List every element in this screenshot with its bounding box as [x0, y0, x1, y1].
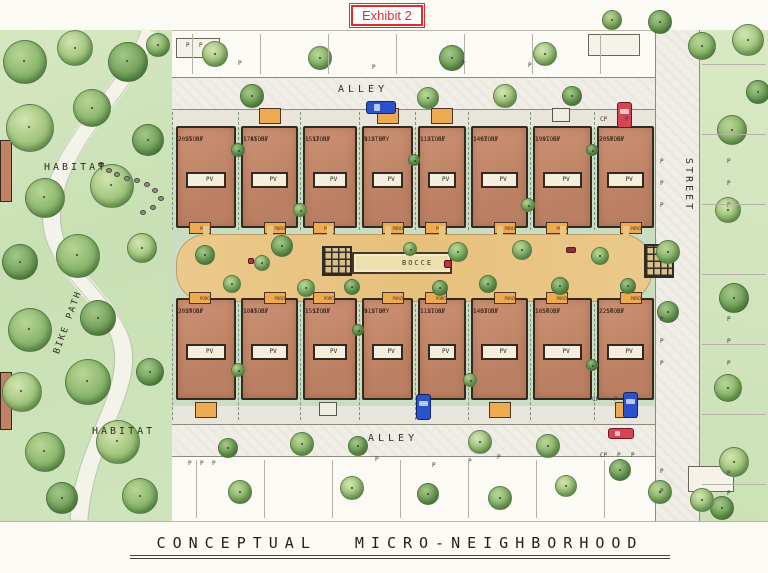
- lot-line: [702, 274, 766, 275]
- lot-line: [702, 204, 766, 205]
- house-area-label: 1121 SF: [420, 136, 445, 144]
- pv-solar-panel: PV: [543, 344, 582, 360]
- lot-line: [600, 34, 601, 74]
- tree-icon: [57, 30, 93, 66]
- tree-icon: [715, 197, 741, 223]
- garage-pad: [195, 402, 217, 418]
- lot-line: [260, 34, 261, 74]
- tree-icon: [25, 432, 65, 472]
- porch-label: PORCH: [631, 223, 642, 234]
- plan-boundary-line: [0, 521, 768, 522]
- house: 1 STORY1512 SFPVPORCH: [303, 298, 357, 400]
- house: 2 STORY2025 SFPVPORCH: [176, 126, 236, 228]
- tree-icon: [80, 300, 116, 336]
- lot-line: [468, 460, 469, 518]
- house: 1 STORY912 SFPVPORCH: [362, 298, 413, 400]
- pv-solar-panel: PV: [372, 172, 403, 188]
- pv-solar-panel: PV: [607, 344, 644, 360]
- tree-icon: [136, 358, 164, 386]
- alley-south: ALLEY: [172, 424, 655, 457]
- tree-icon: [562, 86, 582, 106]
- tree-icon: [719, 283, 749, 313]
- parking-label: P: [660, 360, 664, 367]
- tree-icon: [408, 154, 420, 166]
- pv-solar-panel: PV: [481, 344, 518, 360]
- tree-icon: [297, 279, 315, 297]
- tree-icon: [352, 324, 364, 336]
- pv-label: PV: [563, 174, 570, 186]
- tree-icon: [25, 178, 65, 218]
- pv-solar-panel: PV: [372, 344, 403, 360]
- parking-label: P: [631, 452, 635, 459]
- parking-label: P: [660, 158, 664, 165]
- lot-line: [172, 304, 173, 420]
- lot-line: [702, 344, 766, 345]
- tree-icon: [340, 476, 364, 500]
- tree-icon: [254, 255, 270, 271]
- lot-line: [702, 134, 766, 135]
- car-windshield: [626, 399, 635, 404]
- house-area-label: 1121 SF: [420, 308, 445, 316]
- lot-line: [532, 34, 533, 74]
- porch-label: PORCH: [505, 293, 516, 304]
- garage-pad: [552, 108, 570, 122]
- porch-label: PORCH: [324, 293, 335, 304]
- tree-icon: [231, 363, 245, 377]
- parking-label: P: [727, 158, 731, 165]
- parking-label: P: [660, 316, 664, 323]
- tree-icon: [521, 198, 535, 212]
- lot-line: [238, 112, 239, 230]
- house-area-label: 1512 SF: [305, 136, 330, 144]
- habitat-label-south: HABITAT: [92, 426, 155, 437]
- site-plan-drawing: ALLEY ALLEY BOCCE 2 STORY2025 SFPVPORCH1…: [0, 0, 768, 573]
- tree-icon: [591, 247, 609, 265]
- pv-solar-panel: PV: [313, 172, 347, 188]
- tree-icon: [620, 278, 636, 294]
- tree-icon: [602, 10, 622, 30]
- courtyard-walk: [267, 226, 273, 240]
- house-area-label: 1512 SF: [305, 308, 330, 316]
- tree-icon: [656, 240, 680, 264]
- parking-label: P: [375, 456, 379, 463]
- pv-label: PV: [206, 346, 213, 358]
- tree-icon: [56, 234, 100, 278]
- house-area-label: 2025 SF: [178, 136, 203, 144]
- lot-line: [238, 304, 239, 420]
- parking-label: CP: [592, 396, 599, 403]
- tree-icon: [512, 240, 532, 260]
- alley-apron-south: [172, 406, 655, 424]
- tree-icon: [271, 235, 293, 257]
- lot-line: [594, 112, 595, 230]
- courtyard-walk: [385, 226, 391, 240]
- lot-line: [196, 460, 197, 518]
- car-windshield: [615, 431, 620, 436]
- courtyard-walk: [439, 226, 445, 240]
- parking-label: P: [188, 460, 192, 467]
- tree-icon: [479, 275, 497, 293]
- house: 1 STORY1121 SFPVPORCH: [418, 126, 466, 228]
- tree-icon: [746, 80, 768, 104]
- house: 1 STORY1991 SFPVPORCH: [533, 126, 592, 228]
- exhibit-badge: Exhibit 2: [351, 5, 423, 26]
- alley-south-label: ALLEY: [368, 433, 418, 444]
- stepping-stone: [158, 196, 164, 201]
- tree-icon: [223, 275, 241, 293]
- lot-line: [468, 304, 469, 420]
- parking-label: CP: [600, 452, 607, 459]
- pv-label: PV: [270, 174, 277, 186]
- garage-pad: [259, 108, 281, 124]
- tree-icon: [551, 277, 569, 295]
- parking-label: P: [186, 42, 190, 49]
- tree-icon: [127, 233, 157, 263]
- lot-line: [192, 34, 193, 74]
- lot-line: [332, 460, 333, 518]
- house: 1 STORY1745 SFPVPORCH: [241, 126, 298, 228]
- tree-icon: [8, 308, 52, 352]
- lot-line: [702, 484, 766, 485]
- tree-icon: [719, 447, 749, 477]
- pv-label: PV: [626, 174, 633, 186]
- house: 2 STORY2250 SFPVPORCH: [597, 298, 654, 400]
- porch-label: PORCH: [393, 293, 404, 304]
- tree-icon: [463, 373, 477, 387]
- porch-label: PORCH: [275, 293, 286, 304]
- house: 2 STORY2029 SFPVPORCH: [176, 298, 236, 400]
- car-windshield: [620, 109, 629, 114]
- house: 1 STORY1850 SFPVPORCH: [533, 298, 592, 400]
- pv-solar-panel: PV: [313, 344, 347, 360]
- tree-icon: [439, 45, 465, 71]
- parked-car-icon: [623, 392, 638, 418]
- tree-icon: [586, 144, 598, 156]
- porch-label: PORCH: [275, 223, 286, 234]
- parking-label: P: [212, 460, 216, 467]
- lot-line: [536, 460, 537, 518]
- house-area-label: 2029 SF: [178, 308, 203, 316]
- house-area-label: 1845 SF: [243, 308, 268, 316]
- lot-line: [655, 304, 656, 420]
- tree-icon: [132, 124, 164, 156]
- tree-icon: [65, 359, 111, 405]
- tree-icon: [493, 84, 517, 108]
- parking-label: P: [727, 470, 731, 477]
- stepping-stone: [150, 205, 156, 210]
- lot-line: [400, 460, 401, 518]
- courtyard-walk: [327, 226, 333, 240]
- pv-label: PV: [626, 346, 633, 358]
- parking-label: P: [625, 116, 629, 123]
- porch: PORCH: [189, 292, 211, 304]
- bench-icon: [566, 247, 576, 253]
- tree-icon: [690, 488, 714, 512]
- lot-line: [702, 414, 766, 415]
- street-label: STREET: [683, 158, 694, 212]
- parking-label: P: [199, 42, 203, 49]
- lot-line: [702, 64, 766, 65]
- pv-solar-panel: PV: [251, 344, 288, 360]
- lot-line: [530, 304, 531, 420]
- parking-label: P: [727, 316, 731, 323]
- tree-icon: [403, 242, 417, 256]
- stepping-stone: [140, 210, 146, 215]
- tree-icon: [533, 42, 557, 66]
- pv-label: PV: [330, 346, 337, 358]
- tree-icon: [432, 280, 448, 296]
- tree-icon: [417, 483, 439, 505]
- parked-car-icon: [366, 101, 396, 114]
- pv-solar-panel: PV: [481, 172, 518, 188]
- pv-solar-panel: PV: [543, 172, 582, 188]
- garage-pad: [319, 402, 337, 416]
- stepping-stone: [152, 188, 158, 193]
- parking-label: P: [727, 180, 731, 187]
- trellis-arbor: [322, 246, 352, 276]
- tree-icon: [3, 40, 47, 84]
- lot-line: [359, 304, 360, 420]
- tree-icon: [536, 434, 560, 458]
- tree-icon: [688, 32, 716, 60]
- pv-label: PV: [500, 346, 507, 358]
- parking-label: P: [372, 64, 376, 71]
- parking-label: P: [617, 452, 621, 459]
- porch-label: PORCH: [393, 223, 404, 234]
- house: 1 STORY1121 SFPVPORCH: [418, 298, 466, 400]
- house: 1 STORY912 SFPVPORCH: [362, 126, 413, 228]
- lot-line: [604, 460, 605, 518]
- courtyard-walk: [560, 226, 566, 240]
- tree-icon: [6, 104, 54, 152]
- house: 1 STORY1845 SFPVPORCH: [241, 298, 298, 400]
- neighbor-building: [0, 140, 12, 202]
- tree-icon: [240, 84, 264, 108]
- bench-icon: [444, 260, 452, 268]
- tree-icon: [417, 87, 439, 109]
- parking-label: P: [660, 468, 664, 475]
- pv-label: PV: [442, 174, 449, 186]
- parking-label: P: [727, 360, 731, 367]
- house: 1 STORY1403 SFPVPORCH: [471, 298, 528, 400]
- porch: PORCH: [313, 292, 335, 304]
- tree-icon: [488, 486, 512, 510]
- porch-label: PORCH: [505, 223, 516, 234]
- tree-icon: [586, 359, 598, 371]
- courtyard-walk: [203, 226, 209, 240]
- tree-icon: [448, 242, 468, 262]
- pv-label: PV: [442, 346, 449, 358]
- stepping-stone: [114, 172, 120, 177]
- lot-line: [468, 112, 469, 230]
- house: 2 STORY2050 SFPVPORCH: [597, 126, 654, 228]
- house-area-label: 1403 SF: [473, 308, 498, 316]
- tree-icon: [146, 33, 170, 57]
- parking-label: P: [432, 462, 436, 469]
- neighbor-building: [588, 34, 640, 56]
- parking-label: P: [660, 488, 664, 495]
- parking-label: P: [727, 490, 731, 497]
- parking-label: CP: [600, 116, 607, 123]
- bocce-court: BOCCE: [352, 252, 452, 274]
- lot-line: [172, 112, 173, 230]
- house-area-label: 912 SF: [364, 308, 386, 316]
- tree-icon: [348, 436, 368, 456]
- parking-label: P: [238, 60, 242, 67]
- house: 1 STORY1402 SFPVPORCH: [471, 126, 528, 228]
- tree-icon: [228, 480, 252, 504]
- pv-label: PV: [270, 346, 277, 358]
- parking-label: P: [200, 460, 204, 467]
- house-area-label: 1850 SF: [535, 308, 560, 316]
- house: 1 STORY1512 SFPVPORCH: [303, 126, 357, 228]
- plan-title: CONCEPTUAL MICRO-NEIGHBORHOOD: [130, 534, 670, 559]
- parking-label: P: [660, 180, 664, 187]
- tree-icon: [46, 482, 78, 514]
- lot-line: [300, 304, 301, 420]
- pv-solar-panel: PV: [428, 172, 456, 188]
- lot-line: [415, 112, 416, 230]
- parking-label: P: [497, 454, 501, 461]
- pv-solar-panel: PV: [428, 344, 456, 360]
- pv-label: PV: [500, 174, 507, 186]
- porch-label: PORCH: [200, 293, 211, 304]
- house-area-label: 2050 SF: [599, 136, 624, 144]
- pv-solar-panel: PV: [251, 172, 288, 188]
- garage-pad: [431, 108, 453, 124]
- stepping-stone: [144, 182, 150, 187]
- lot-line: [655, 112, 656, 230]
- tree-icon: [2, 372, 42, 412]
- pv-label: PV: [206, 174, 213, 186]
- lot-line: [359, 112, 360, 230]
- tree-icon: [290, 432, 314, 456]
- tree-icon: [218, 438, 238, 458]
- parking-label: P: [660, 338, 664, 345]
- tree-icon: [195, 245, 215, 265]
- porch: PORCH: [620, 292, 642, 304]
- courtyard-walk: [623, 226, 629, 240]
- tree-icon: [231, 143, 245, 157]
- pv-label: PV: [330, 174, 337, 186]
- tree-icon: [555, 475, 577, 497]
- lot-line: [396, 34, 397, 74]
- tree-icon: [202, 41, 228, 67]
- tree-icon: [609, 459, 631, 481]
- parking-label: P: [614, 396, 618, 403]
- porch: PORCH: [264, 292, 286, 304]
- tree-icon: [122, 478, 158, 514]
- garage-pad: [489, 402, 511, 418]
- parked-car-icon: [608, 428, 634, 439]
- pv-label: PV: [388, 346, 395, 358]
- tree-icon: [73, 89, 111, 127]
- tree-icon: [108, 42, 148, 82]
- pv-label: PV: [563, 346, 570, 358]
- pv-solar-panel: PV: [186, 344, 226, 360]
- pv-solar-panel: PV: [186, 172, 226, 188]
- alley-north-label: ALLEY: [338, 84, 388, 95]
- pv-solar-panel: PV: [607, 172, 644, 188]
- car-windshield: [419, 401, 428, 406]
- house-area-label: 1991 SF: [535, 136, 560, 144]
- parked-car-icon: [617, 102, 632, 128]
- porch: PORCH: [382, 292, 404, 304]
- parking-label: P: [660, 202, 664, 209]
- car-windshield: [374, 104, 380, 111]
- bocce-label: BOCCE: [402, 254, 433, 272]
- lot-line: [264, 460, 265, 518]
- tree-icon: [293, 203, 307, 217]
- house-area-label: 1402 SF: [473, 136, 498, 144]
- stepping-stone: [134, 178, 140, 183]
- tree-icon: [2, 244, 38, 280]
- tree-icon: [717, 115, 747, 145]
- house-area-label: 912 SF: [364, 136, 386, 144]
- lot-line: [328, 34, 329, 74]
- habitat-label-north: HABITAT: [44, 162, 107, 173]
- stepping-stone: [124, 176, 130, 181]
- tree-icon: [732, 24, 764, 56]
- tree-icon: [714, 374, 742, 402]
- house-area-label: 2250 SF: [599, 308, 624, 316]
- tree-icon: [344, 279, 360, 295]
- lot-line: [530, 112, 531, 230]
- parked-car-icon: [416, 394, 431, 420]
- tree-icon: [468, 430, 492, 454]
- lot-line: [464, 34, 465, 74]
- pv-label: PV: [388, 174, 395, 186]
- porch-label: PORCH: [631, 293, 642, 304]
- courtyard-walk: [497, 226, 503, 240]
- house-area-label: 1745 SF: [243, 136, 268, 144]
- tree-icon: [648, 10, 672, 34]
- porch: PORCH: [494, 292, 516, 304]
